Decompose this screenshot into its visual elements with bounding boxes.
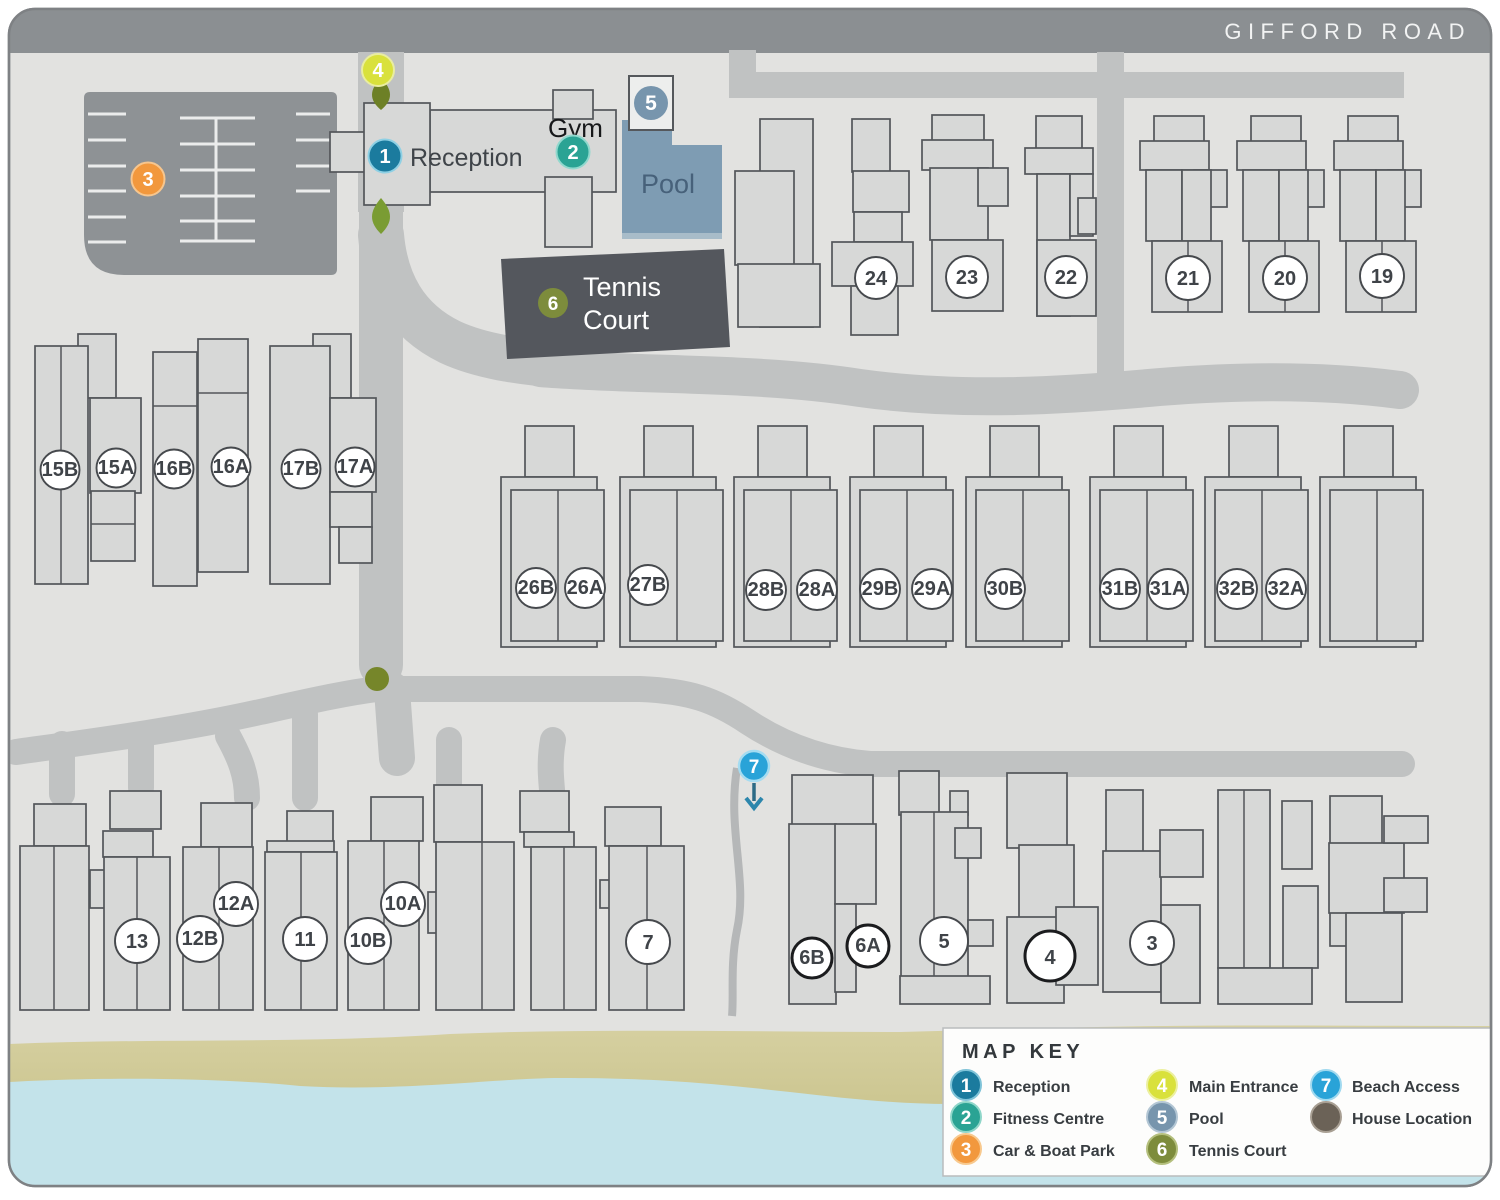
svg-text:22: 22 (1055, 267, 1077, 289)
svg-text:32B: 32B (1219, 578, 1256, 600)
svg-text:17A: 17A (337, 456, 374, 478)
svg-text:Court: Court (583, 305, 650, 335)
svg-text:19: 19 (1371, 266, 1393, 288)
svg-text:5: 5 (645, 92, 657, 115)
svg-text:20: 20 (1274, 268, 1296, 290)
svg-text:27B: 27B (630, 574, 667, 596)
svg-text:7: 7 (749, 757, 760, 778)
svg-text:30B: 30B (987, 578, 1024, 600)
svg-text:12A: 12A (218, 893, 255, 915)
svg-text:5: 5 (938, 931, 949, 953)
svg-text:Main Entrance: Main Entrance (1189, 1079, 1298, 1096)
svg-text:23: 23 (956, 267, 978, 289)
svg-text:31A: 31A (1150, 578, 1187, 600)
svg-text:11: 11 (294, 929, 315, 951)
svg-text:31B: 31B (1102, 578, 1139, 600)
svg-text:Beach Access: Beach Access (1352, 1079, 1460, 1096)
svg-text:29A: 29A (914, 578, 951, 600)
svg-text:10B: 10B (350, 930, 387, 952)
svg-text:16B: 16B (156, 458, 193, 480)
svg-text:13: 13 (126, 931, 148, 953)
svg-text:10A: 10A (385, 893, 422, 915)
svg-text:3: 3 (142, 169, 153, 191)
svg-text:Reception: Reception (993, 1079, 1070, 1096)
svg-text:5: 5 (1157, 1108, 1168, 1129)
svg-text:Fitness Centre: Fitness Centre (993, 1111, 1104, 1128)
svg-text:Pool: Pool (641, 169, 695, 199)
svg-text:4: 4 (1044, 947, 1056, 969)
svg-text:26B: 26B (518, 577, 555, 599)
svg-text:17B: 17B (283, 458, 320, 480)
svg-text:26A: 26A (567, 577, 604, 599)
svg-text:Tennis Court: Tennis Court (1189, 1143, 1287, 1160)
svg-text:7: 7 (642, 932, 653, 954)
svg-text:1: 1 (379, 146, 390, 168)
svg-text:6: 6 (1157, 1140, 1168, 1161)
svg-text:28B: 28B (748, 579, 785, 601)
svg-text:Pool: Pool (1189, 1111, 1224, 1128)
svg-text:3: 3 (1146, 933, 1157, 955)
svg-text:Car & Boat Park: Car & Boat Park (993, 1143, 1115, 1160)
svg-text:2: 2 (567, 142, 578, 164)
svg-text:32A: 32A (1268, 578, 1305, 600)
svg-text:1: 1 (961, 1076, 972, 1097)
svg-text:6B: 6B (799, 947, 825, 969)
svg-text:6A: 6A (855, 935, 881, 957)
svg-text:House Location: House Location (1352, 1111, 1472, 1128)
svg-text:28A: 28A (799, 579, 836, 601)
svg-text:29B: 29B (862, 578, 899, 600)
svg-text:4: 4 (1157, 1076, 1168, 1097)
svg-text:12B: 12B (182, 928, 219, 950)
svg-text:6: 6 (548, 294, 559, 315)
svg-text:15B: 15B (42, 459, 79, 481)
svg-text:7: 7 (1321, 1076, 1332, 1097)
svg-text:2: 2 (961, 1108, 972, 1129)
svg-text:Reception: Reception (410, 144, 523, 172)
svg-text:GIFFORD ROAD: GIFFORD ROAD (1224, 19, 1471, 44)
svg-text:3: 3 (961, 1140, 972, 1161)
svg-text:24: 24 (865, 268, 888, 290)
svg-text:4: 4 (372, 60, 384, 82)
svg-text:Tennis: Tennis (583, 272, 661, 302)
svg-text:21: 21 (1177, 268, 1199, 290)
svg-text:16A: 16A (213, 456, 250, 478)
svg-text:15A: 15A (98, 457, 135, 479)
svg-text:MAP KEY: MAP KEY (962, 1041, 1084, 1063)
